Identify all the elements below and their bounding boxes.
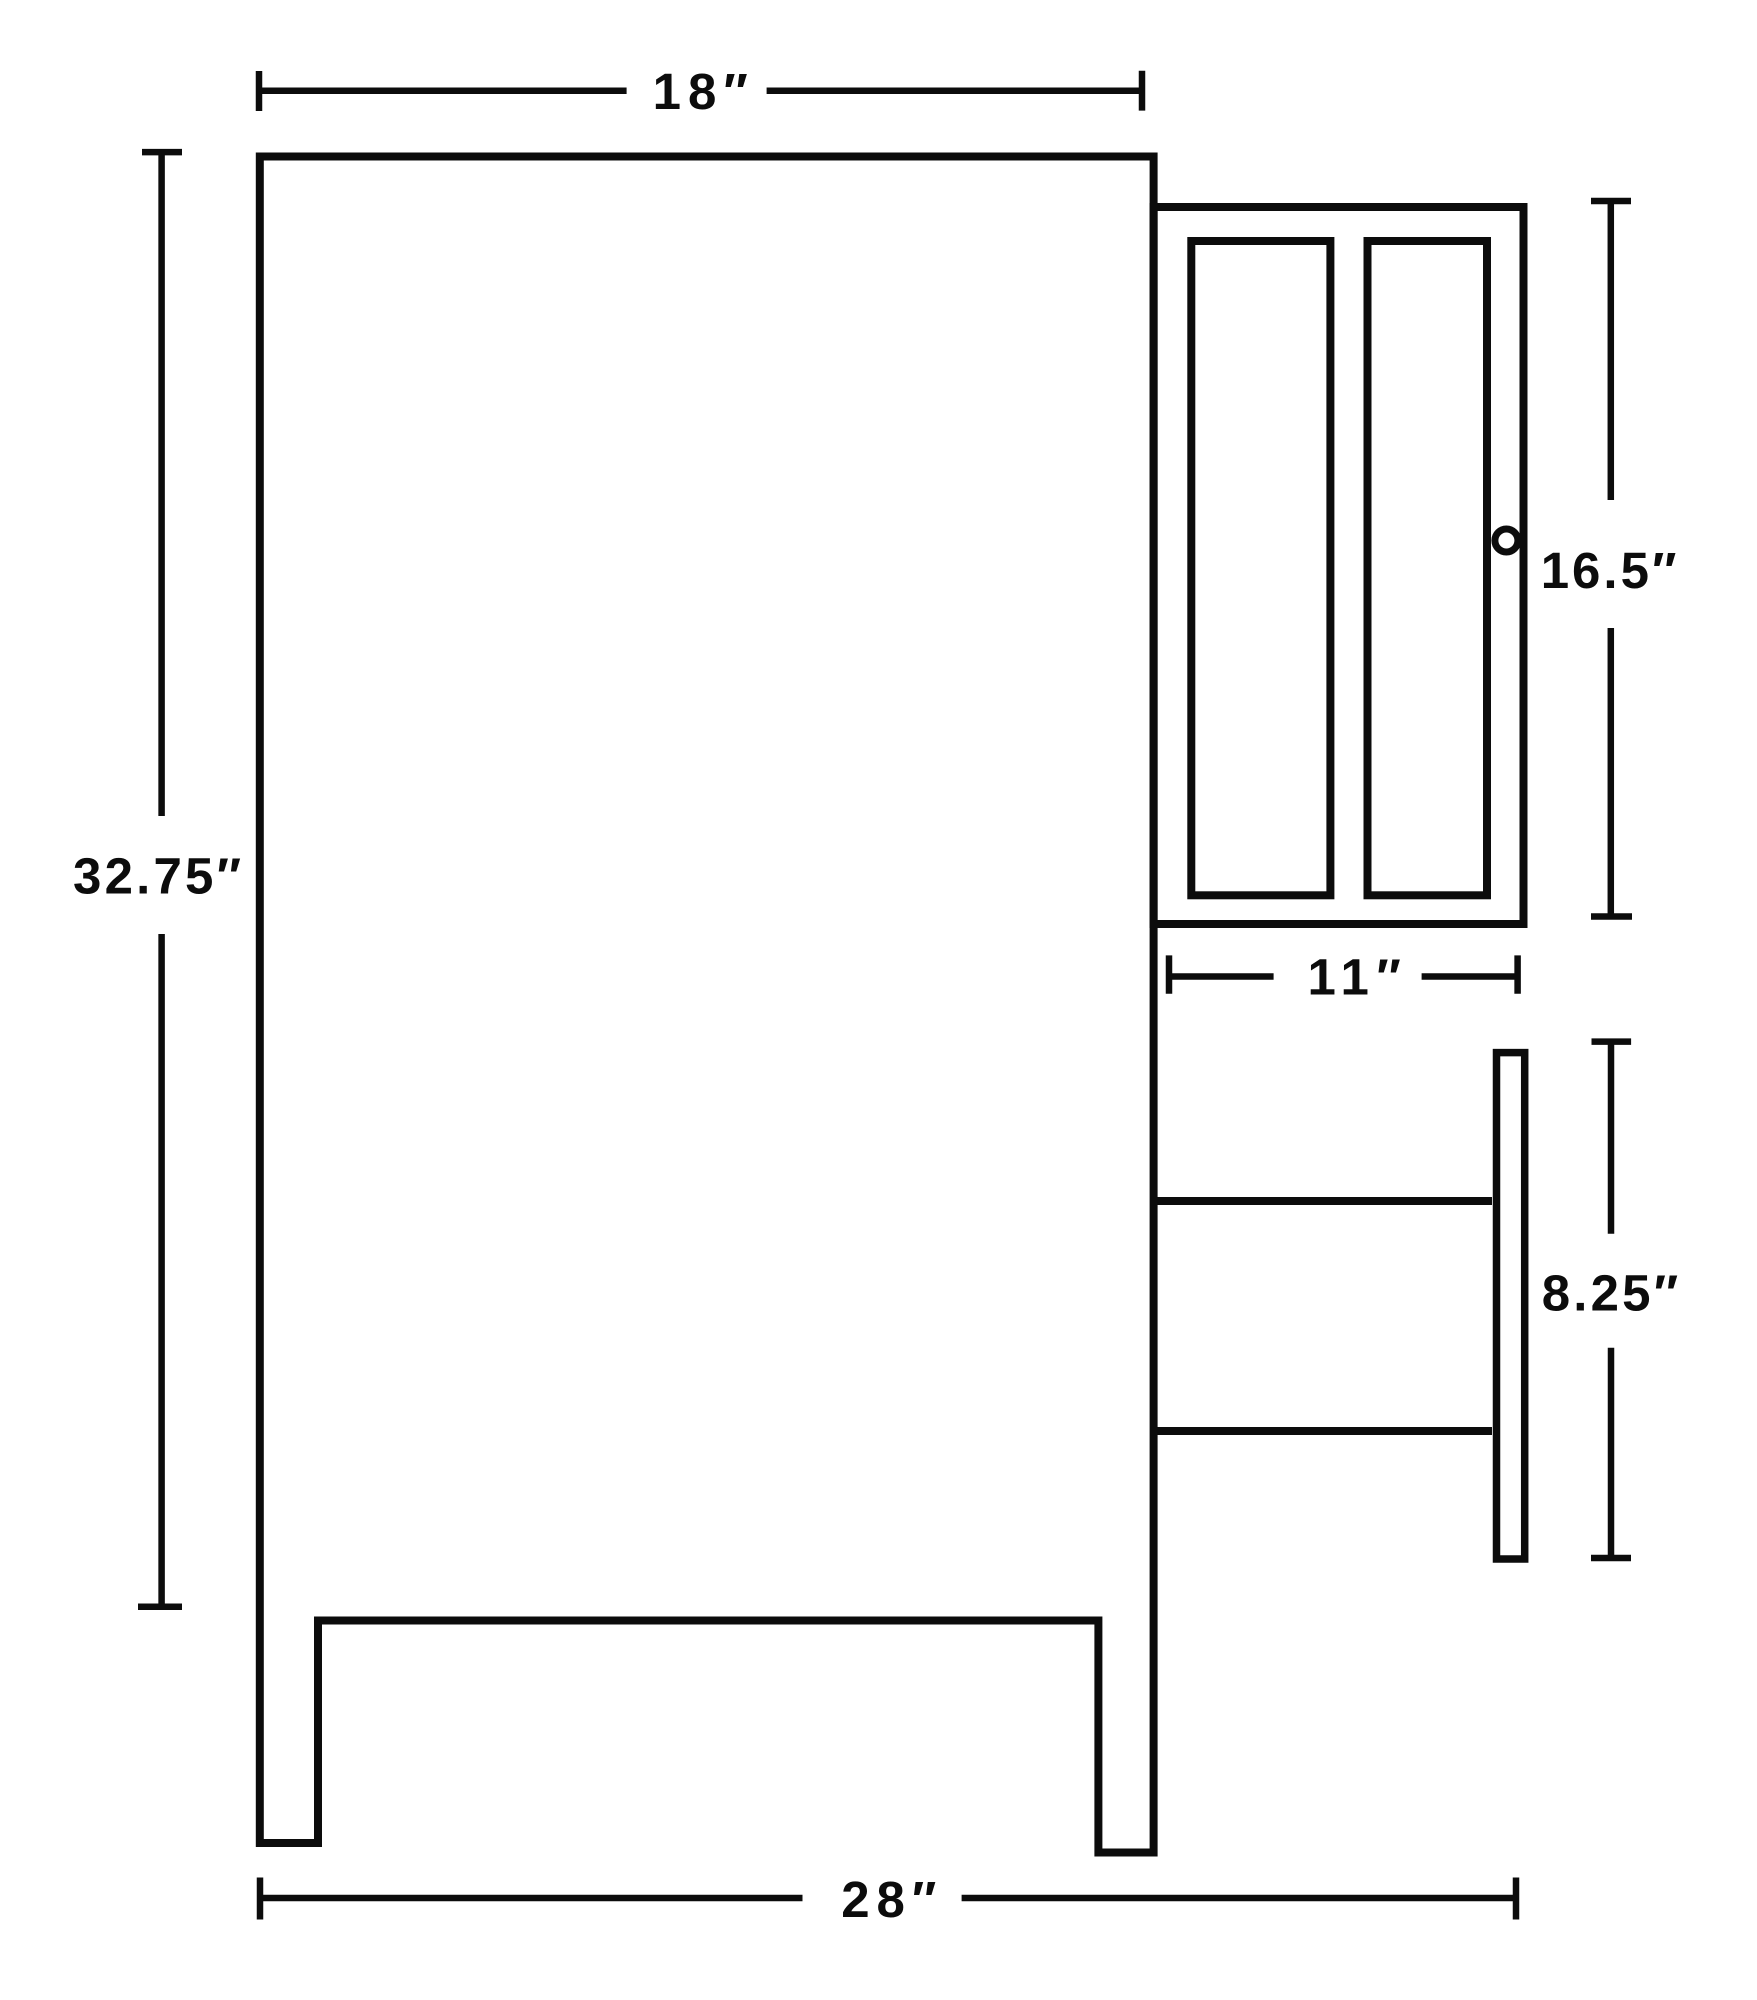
svg-text:8.25″: 8.25″ [1542, 1265, 1682, 1322]
svg-text:28″: 28″ [841, 1871, 943, 1928]
svg-text:16.5″: 16.5″ [1541, 542, 1680, 599]
svg-text:18″: 18″ [653, 63, 755, 120]
svg-text:32.75″: 32.75″ [73, 848, 244, 905]
svg-text:11″: 11″ [1308, 949, 1409, 1006]
